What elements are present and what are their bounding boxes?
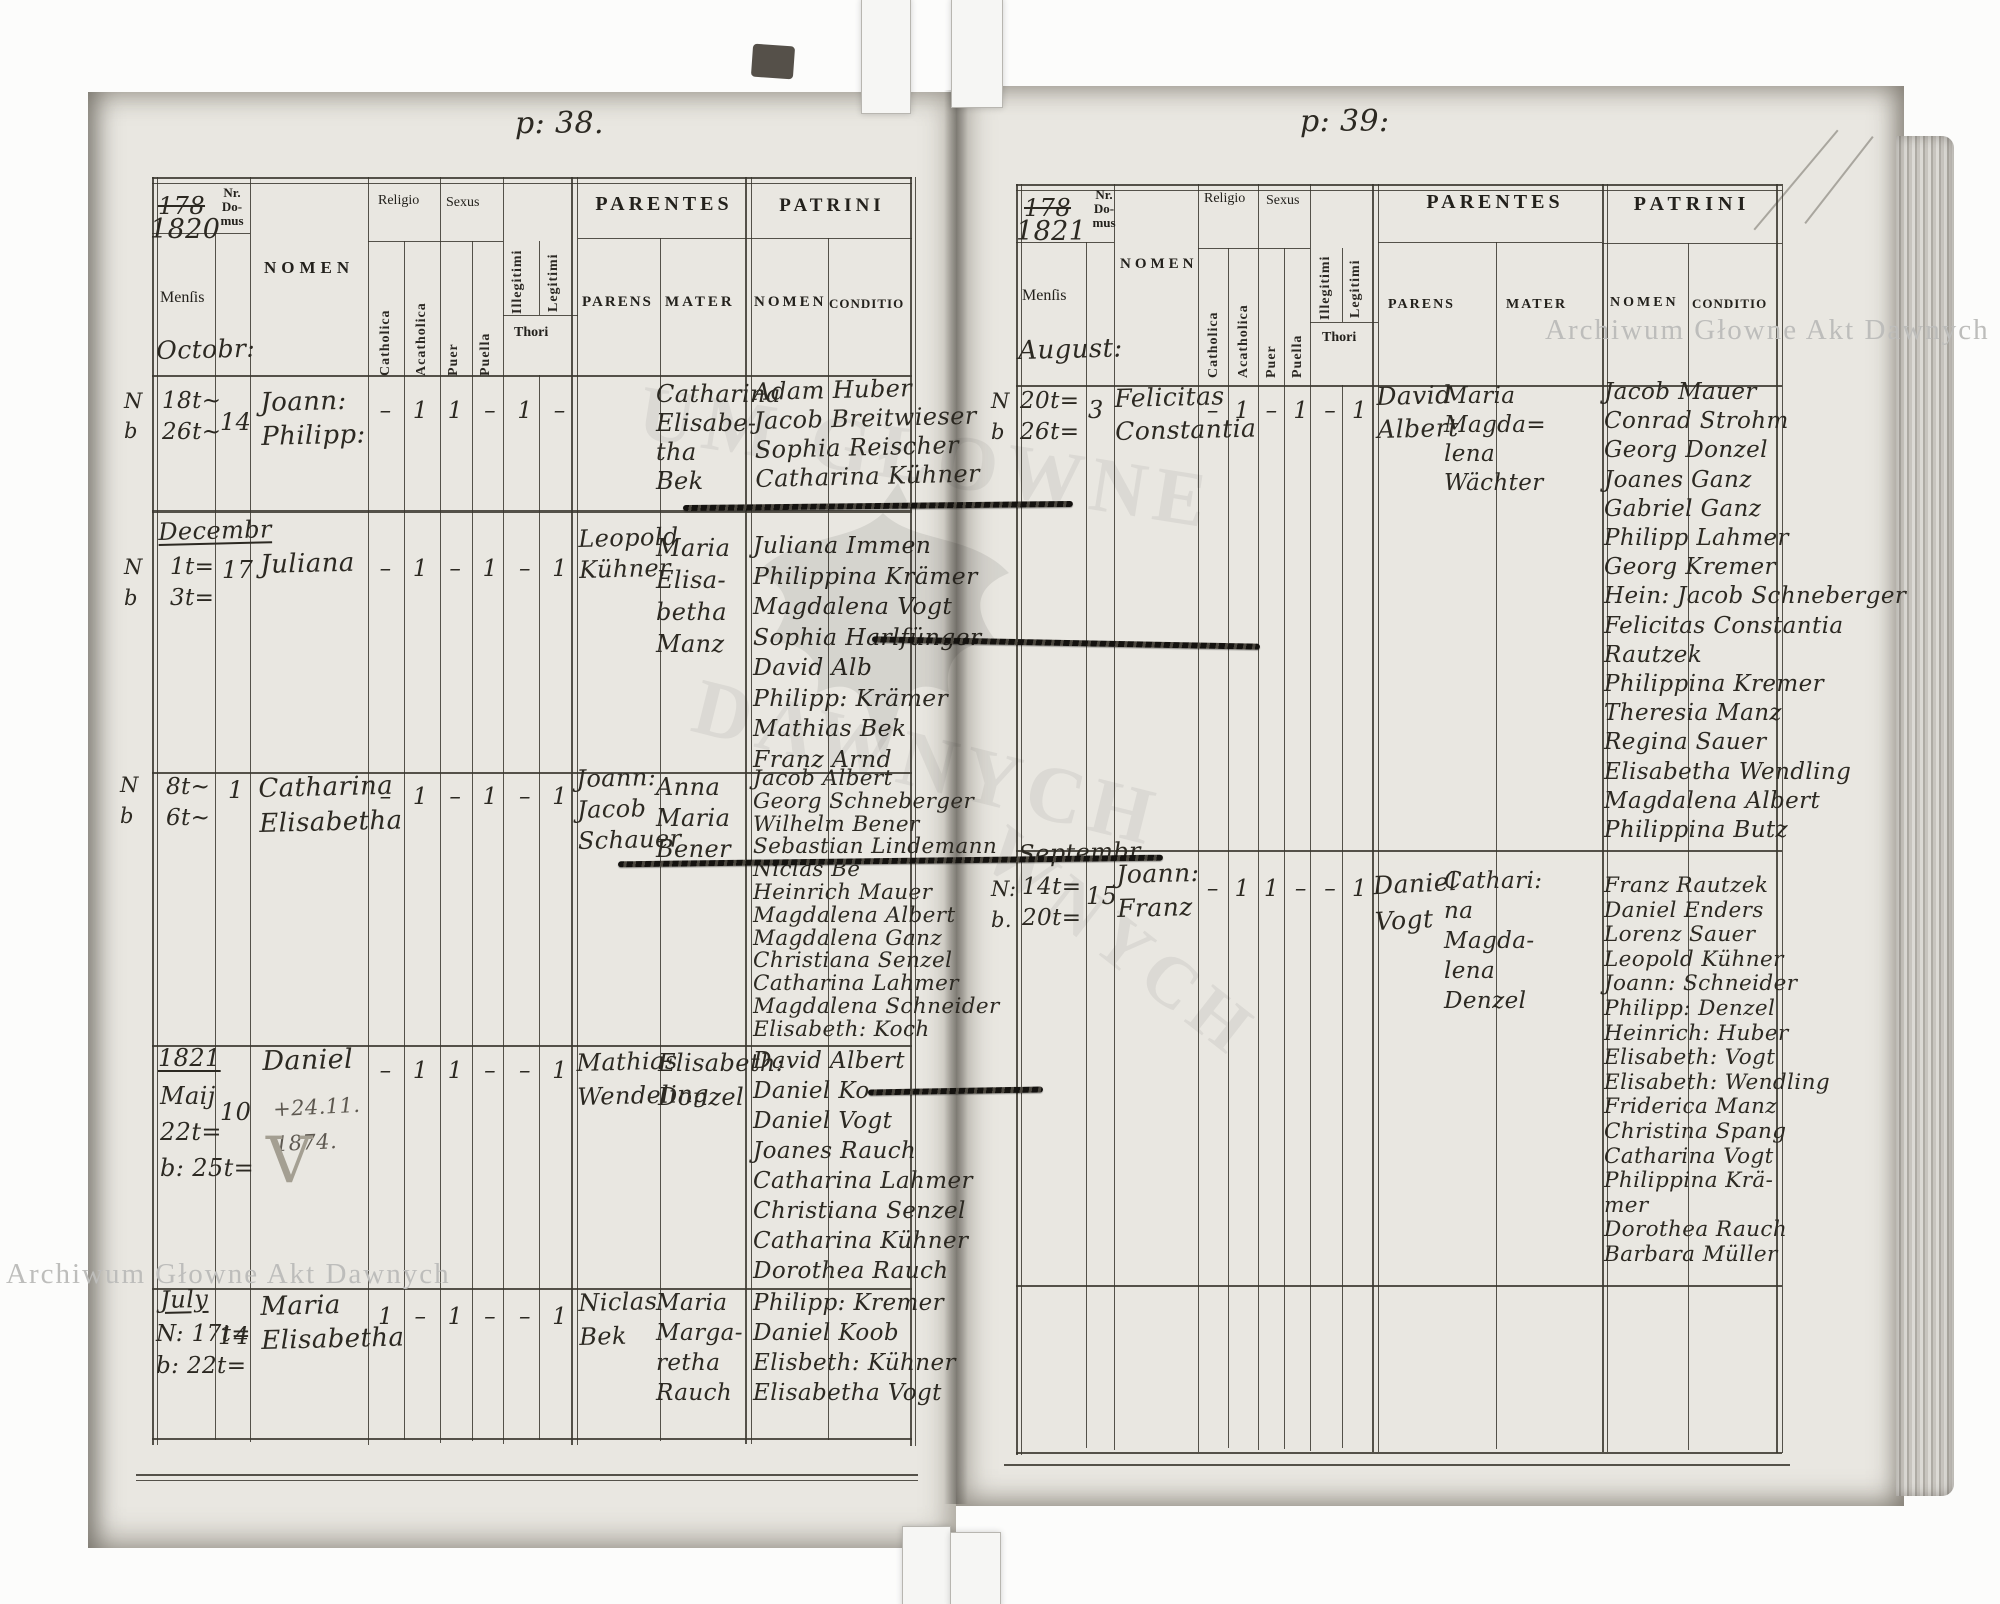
entry-house-number: 17 [222,556,253,584]
binding-clip [751,44,795,80]
grid-line [1342,248,1343,322]
column-header-thori: Thori [1322,330,1356,346]
column-header-patrini-nomen: NOMEN [754,294,827,311]
mark-puer: 1 [438,1058,473,1084]
month-label: Octobr: [156,334,255,365]
grid-line [503,177,504,1444]
page-number: p: 38. [515,106,604,141]
mark-puella: – [472,1304,507,1330]
column-header-legitimi: Legitimi [1348,252,1364,318]
entry-dates: Maij 22t= b: 25t= [160,1078,254,1186]
mark-acatholica: 1 [1227,876,1256,902]
grid-line [440,177,441,1443]
column-header-catholica: Catholica [1206,300,1222,378]
entry-tally-marks: 1 – 1 – – 1 [368,1304,577,1330]
entry-child-name: Juliana [260,548,355,580]
column-header-sexus: Sexus [446,195,479,211]
entry-month: Decembr [158,515,272,546]
mark-acatholica: 1 [403,1058,438,1084]
column-header-religio: Religio [378,193,419,209]
entry-month: 1821 [158,1044,221,1072]
mark-puer: 1 [1257,876,1286,902]
column-header-nomen: NOMEN [264,258,354,278]
grid-line [1016,1452,1782,1454]
mark-puella: 1 [472,784,507,810]
entry-margin-mark: N b [120,770,139,832]
mark-illegitimi: – [507,1058,542,1084]
grid-line [751,177,752,1444]
column-header-nr-domus: Nr. Do- mus [1084,188,1124,230]
entry-margin-mark: N b [124,386,143,446]
mark-puella: – [472,1058,507,1084]
entry-tally-marks: – 1 1 – – 1 [368,1058,577,1084]
grid-line [1378,242,1602,243]
grid-line [1198,248,1310,249]
entry-child-name: Joann: Philipp: [260,383,366,454]
mark-catholica: – [1198,398,1227,424]
entry-mater: Maria Marga- retha Rauch [656,1288,743,1408]
binding-tape-top-left [861,0,911,114]
column-header-nomen: NOMEN [1120,256,1198,273]
mark-puer: 1 [438,398,473,424]
binding-tape-bottom-left [902,1526,951,1604]
mark-legitimi: 1 [1345,876,1374,902]
binding-tape-top-right [951,0,1003,108]
page-number: p: 39: [1300,104,1390,139]
entry-house-number: 3 [1088,396,1104,424]
entry-tally-marks: – 1 1 – 1 – [368,398,577,424]
mark-legitimi: 1 [1345,398,1374,424]
entry-patrini-list: Franz Rautzek Daniel Enders Lorenz Sauer… [1604,874,1830,1268]
mark-puella: – [472,398,507,424]
archive-watermark-eagle [728,468,1038,798]
mark-catholica: 1 [368,1304,403,1330]
grid-line [1198,184,1199,1452]
entry-house-number: 14 [218,1322,249,1350]
entry-tally-marks: – 1 – 1 – 1 [1198,398,1374,424]
entry-parens: Niclas Bek [578,1284,658,1354]
column-header-religio: Religio [1204,191,1245,207]
grid-line [1258,184,1259,1450]
mark-illegitimi: 1 [507,398,542,424]
section-header-parentes: PARENTES [1410,191,1580,214]
mark-illegitimi: – [507,556,542,582]
mark-catholica: – [368,556,403,582]
entry-mater: Anna Maria Bener [656,772,731,865]
grid-line [1284,248,1285,1449]
grid-line [1372,184,1374,1452]
column-header-illegitimi: Illegitimi [1318,250,1334,320]
column-header-parens: PARENS [582,294,653,311]
mark-puer: – [438,556,473,582]
month-label: August: [1018,333,1123,366]
entry-tally-marks: – 1 – 1 – 1 [368,784,577,810]
scanned-register-spread: Archiwum Głowne Akt Dawnych Archiwum Gło… [0,0,2000,1604]
grid-line [250,177,251,1442]
mark-illegitimi: – [507,784,542,810]
mark-puella: 1 [472,556,507,582]
grid-line [1310,184,1311,1451]
entry-dates: 1t= 3t= [170,552,214,614]
grid-line [539,375,540,1440]
mark-legitimi: 1 [542,1058,577,1084]
grid-line [136,1480,918,1481]
mark-catholica: – [1198,876,1227,902]
entry-house-number: 1 [228,776,244,804]
entry-tally-marks: – 1 – 1 – 1 [368,556,577,582]
mark-puella: 1 [1286,398,1315,424]
grid-line [152,183,912,184]
binding-tape-bottom-right [950,1532,1001,1604]
mark-acatholica: 1 [403,784,438,810]
year-value: 1820 [150,214,220,245]
archive-watermark-text: Archiwum Głowne Akt Dawnych [1545,314,1990,347]
entry-margin-mark: N b [124,552,143,614]
column-header-illegitimi: Illegitimi [510,244,526,314]
grid-line [1016,1285,1782,1287]
entry-patrini-list: David Albert Daniel Ko Daniel Vogt Joane… [753,1046,973,1286]
grid-line [368,241,503,242]
section-header-parentes: PARENTES [584,193,744,216]
column-header-puella: Puella [478,326,494,376]
column-header-parens: PARENS [1388,297,1455,313]
column-header-legitimi: Legitimi [546,246,562,312]
mark-acatholica: 1 [1227,398,1256,424]
section-header-patrini: PATRINI [1616,193,1768,216]
grid-line [157,177,158,1445]
mark-catholica: – [368,1058,403,1084]
mark-puer: – [1257,398,1286,424]
column-header-conditio: CONDITIO [1692,296,1767,312]
entry-dates: 8t~ 6t~ [166,772,210,834]
column-header-puer: Puer [1264,330,1280,378]
entry-house-number: 10 [220,1098,251,1126]
section-header-patrini: PATRINI [756,195,908,217]
mark-legitimi: 1 [542,556,577,582]
entry-house-number: 14 [220,408,251,436]
mark-acatholica: 1 [403,398,438,424]
mark-acatholica: – [403,1304,438,1330]
mark-catholica: – [368,398,403,424]
grid-line [503,315,578,316]
mark-legitimi: 1 [542,784,577,810]
column-header-mensis: Menſis [160,289,204,307]
pencil-checkmark: V [266,1124,312,1198]
mark-illegitimi: – [507,1304,542,1330]
column-header-mater: MATER [665,294,735,311]
column-header-acatholica: Acatholica [414,298,430,376]
column-header-mensis: Menſis [1022,287,1066,305]
entry-mater: Maria Elisa- betha Manz [656,532,730,660]
column-header-mater: MATER [1506,297,1567,313]
grid-line [1602,243,1782,244]
entry-tally-marks: – 1 1 – – 1 [1198,876,1374,902]
grid-line [1310,322,1378,323]
grid-line [571,177,573,1445]
grid-line [152,177,912,179]
entry-dates: 18t~ 26t~ [162,386,221,448]
mark-legitimi: – [542,398,577,424]
entry-mater: Cathari: na Magda- lena Denzel [1444,866,1542,1016]
grid-line [745,177,747,1444]
column-header-catholica: Catholica [378,302,394,376]
archive-watermark-text: Archiwum Głowne Akt Dawnych [6,1258,451,1291]
column-header-puella: Puella [1290,324,1306,378]
grid-line [1016,184,1782,186]
column-header-conditio: CONDITIO [829,296,904,312]
column-header-puer: Puer [446,330,462,376]
grid-line [539,241,540,315]
column-header-patrini-nomen: NOMEN [1610,295,1679,311]
grid-line [1004,1464,1790,1466]
grid-line [1016,190,1782,191]
entry-patrini-list: Jacob Mauer Conrad Strohm Georg Donzel J… [1604,378,1906,845]
grid-line [136,1474,918,1476]
entry-patrini-list: Philipp: Kremer Daniel Koob Elisbeth: Kü… [753,1288,956,1408]
column-header-sexus: Sexus [1266,193,1299,209]
mark-catholica: – [368,784,403,810]
grid-line [152,1438,912,1440]
column-header-thori: Thori [514,325,548,341]
mark-puella: – [1286,876,1315,902]
mark-puer: – [438,784,473,810]
year-value: 1821 [1016,216,1086,247]
mark-illegitimi: – [1315,398,1344,424]
grid-line [152,177,154,1445]
column-header-nr-domus: Nr. Do- mus [212,186,252,228]
mark-legitimi: 1 [542,1304,577,1330]
mark-acatholica: 1 [403,556,438,582]
mark-illegitimi: – [1315,876,1344,902]
mark-puer: 1 [438,1304,473,1330]
grid-line [1342,385,1343,1448]
grid-line [1378,184,1379,1452]
entry-mater: Maria Magda= lena Wächter [1444,382,1546,498]
entry-child-name: Daniel [262,1044,354,1077]
column-header-acatholica: Acatholica [1236,296,1252,378]
